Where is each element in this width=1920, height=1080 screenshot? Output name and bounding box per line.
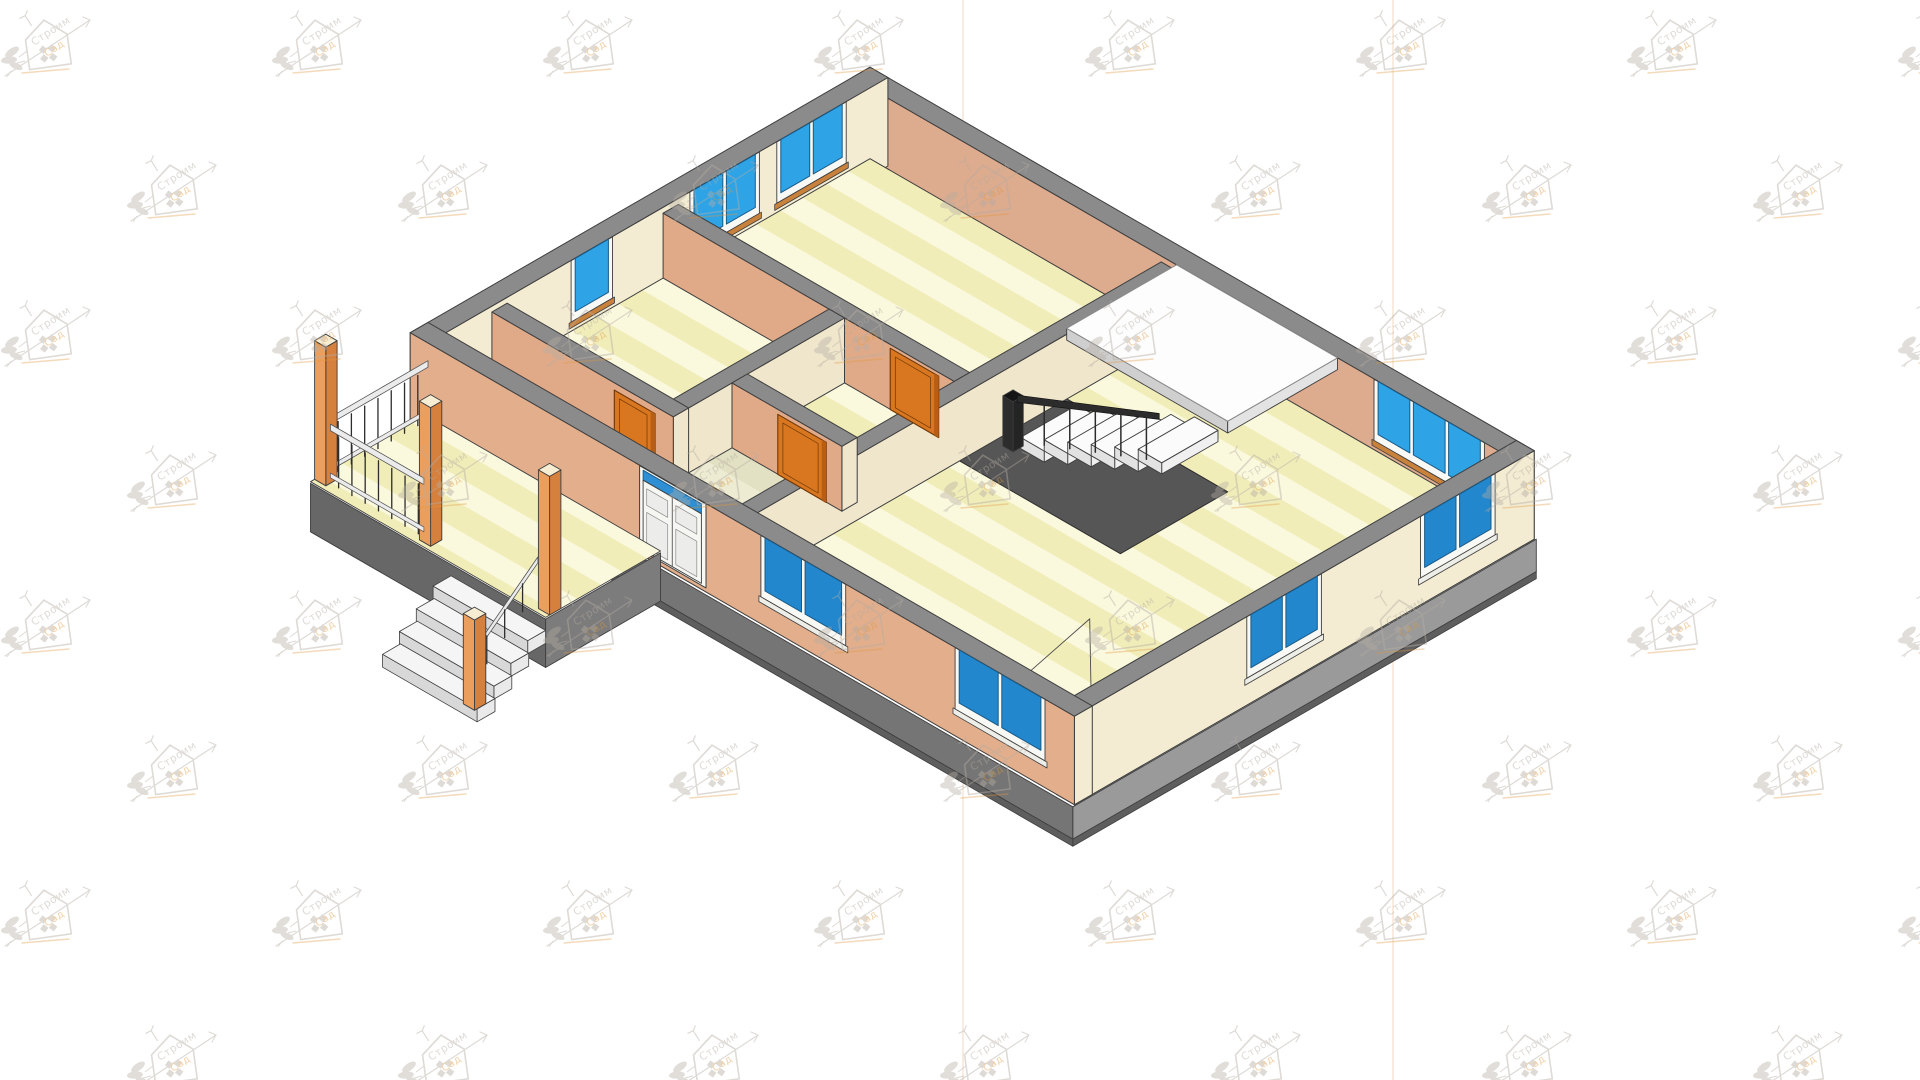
watermark-stamp (1, 295, 90, 367)
watermark-stamp (1898, 5, 1920, 77)
screenshot-root: СтроимСад (0, 0, 1920, 1080)
watermark-stamp (272, 5, 361, 77)
house-render (311, 67, 1537, 846)
watermark-stamp (127, 730, 216, 802)
watermark-stamp (1, 5, 90, 77)
watermark-stamp (1, 875, 90, 947)
watermark-stamp (398, 730, 487, 802)
watermark-stamp (1482, 730, 1571, 802)
floorplan-render: СтроимСад (0, 0, 1920, 1080)
watermark-stamp (398, 1020, 487, 1080)
watermark-stamp (1898, 585, 1920, 657)
watermark-stamp (1085, 5, 1174, 77)
watermark-stamp (1627, 5, 1716, 77)
watermark-stamp (1, 585, 90, 657)
watermark-stamp (1753, 150, 1842, 222)
watermark-stamp (1356, 5, 1445, 77)
watermark-stamp (940, 1020, 1029, 1080)
watermark-stamp (669, 730, 758, 802)
watermark-stamp (272, 585, 361, 657)
watermark-stamp (1356, 875, 1445, 947)
watermark-stamp (1898, 295, 1920, 367)
watermark-stamp (1211, 1020, 1300, 1080)
watermark-stamp (127, 1020, 216, 1080)
watermark-stamp (127, 440, 216, 512)
watermark-stamp (398, 150, 487, 222)
watermark-stamp (1482, 150, 1571, 222)
watermark-stamp (1211, 150, 1300, 222)
watermark-stamp (1627, 585, 1716, 657)
watermark-stamp (1898, 875, 1920, 947)
watermark-stamp (127, 150, 216, 222)
porch-post-bottom (463, 607, 486, 710)
watermark-stamp (814, 5, 903, 77)
watermark-stamp (814, 875, 903, 947)
watermark-stamp (1085, 875, 1174, 947)
watermark-stamp (1627, 295, 1716, 367)
watermark-stamp (1356, 295, 1445, 367)
watermark-stamp (1482, 1020, 1571, 1080)
watermark-stamp (1753, 730, 1842, 802)
watermark-stamp (1627, 875, 1716, 947)
watermark-stamp (543, 5, 632, 77)
watermark-stamp (669, 1020, 758, 1080)
watermark-stamp (1753, 1020, 1842, 1080)
watermark-stamp (1753, 440, 1842, 512)
watermark-stamp (272, 875, 361, 947)
watermark-stamp (543, 875, 632, 947)
